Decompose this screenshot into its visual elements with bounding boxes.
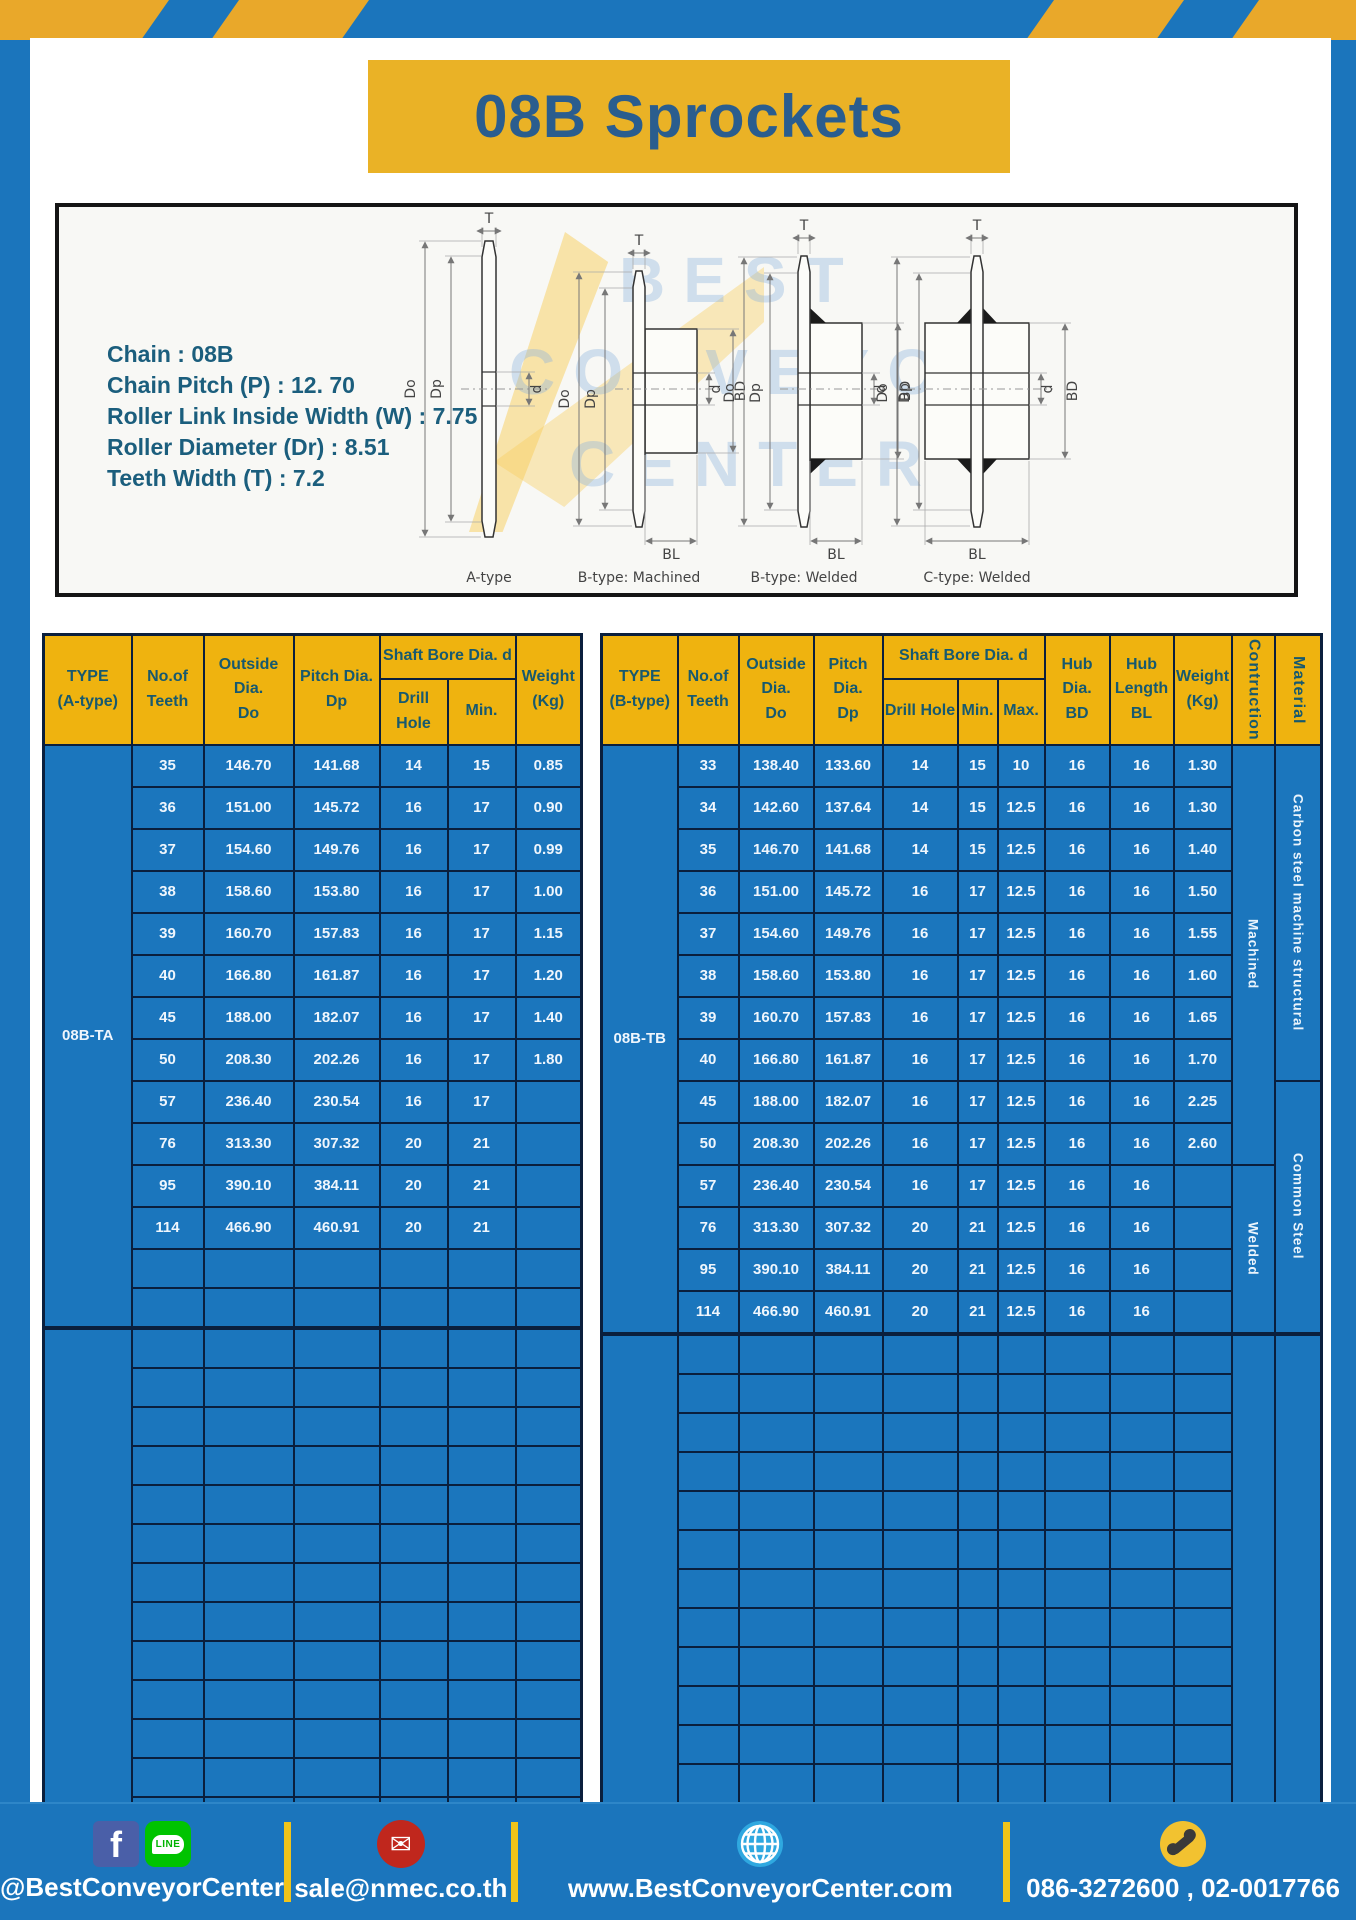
data-cell xyxy=(883,1686,958,1725)
data-cell xyxy=(1110,1686,1174,1725)
data-cell: 16 xyxy=(883,913,958,955)
data-cell: 95 xyxy=(132,1165,204,1207)
table-row: 45188.00182.07161712.516162.25Common Ste… xyxy=(602,1081,1322,1123)
data-cell: 38 xyxy=(132,871,204,913)
data-cell: 202.26 xyxy=(814,1123,883,1165)
data-cell: 16 xyxy=(883,997,958,1039)
data-cell: 158.60 xyxy=(739,955,814,997)
data-cell xyxy=(132,1563,204,1602)
data-cell xyxy=(516,1288,582,1328)
data-cell xyxy=(380,1407,448,1446)
data-cell xyxy=(998,1491,1045,1530)
data-cell xyxy=(516,1758,582,1797)
data-cell: 17 xyxy=(958,871,998,913)
sprocket-diagrams: T Do Dp d A-type T xyxy=(389,211,1294,589)
data-cell: 21 xyxy=(958,1291,998,1334)
data-cell xyxy=(204,1368,294,1407)
data-cell xyxy=(380,1719,448,1758)
data-cell: 1.60 xyxy=(1174,955,1232,997)
data-cell: 182.07 xyxy=(814,1081,883,1123)
dim-label-d: d xyxy=(529,385,545,394)
data-cell xyxy=(204,1563,294,1602)
col-header-min: Min. xyxy=(958,679,998,745)
b-type-table: TYPE (B-type) No.of Teeth Outside Dia. D… xyxy=(600,633,1323,1805)
data-cell: 12.5 xyxy=(998,871,1045,913)
data-cell: 37 xyxy=(132,829,204,871)
data-cell xyxy=(1110,1569,1174,1608)
data-cell: 16 xyxy=(1045,1207,1110,1249)
data-cell: 50 xyxy=(132,1039,204,1081)
table-row: 37154.60149.76161712.516161.55 xyxy=(602,913,1322,955)
data-cell xyxy=(204,1446,294,1485)
diagram-caption: A-type xyxy=(466,570,512,586)
data-cell xyxy=(380,1758,448,1797)
data-cell xyxy=(814,1530,883,1569)
data-cell: 17 xyxy=(448,1081,516,1123)
data-cell xyxy=(132,1249,204,1288)
dim-label-bl: BL xyxy=(662,547,680,563)
website-url: www.BestConveyorCenter.com xyxy=(568,1873,953,1904)
data-cell xyxy=(380,1446,448,1485)
data-cell xyxy=(883,1647,958,1686)
data-cell xyxy=(998,1569,1045,1608)
data-cell: 12.5 xyxy=(998,787,1045,829)
b-type-table-body: 08B-TB33138.40133.6014151016161.30Machin… xyxy=(602,745,1322,1804)
data-cell xyxy=(380,1680,448,1719)
data-cell xyxy=(958,1452,998,1491)
dim-label-dp: Dp xyxy=(748,383,764,403)
data-cell xyxy=(814,1725,883,1764)
data-cell: 20 xyxy=(380,1207,448,1249)
diagram-b-machined: T Do Dp d BD BL B-type: Ma xyxy=(557,233,749,586)
data-cell: 17 xyxy=(448,1039,516,1081)
table-row xyxy=(602,1530,1322,1569)
data-cell xyxy=(448,1368,516,1407)
col-header-pitch-dia: Pitch Dia. Dp xyxy=(294,635,380,745)
data-cell xyxy=(739,1334,814,1374)
data-cell: 1.20 xyxy=(516,955,582,997)
table-row: 08B-TA35146.70141.6814150.85 xyxy=(44,745,582,787)
col-header-outside-dia: Outside Dia. Do xyxy=(739,635,814,745)
data-cell: 16 xyxy=(1110,955,1174,997)
data-cell xyxy=(958,1647,998,1686)
data-cell: 17 xyxy=(448,997,516,1039)
data-cell xyxy=(998,1530,1045,1569)
data-cell xyxy=(1174,1764,1232,1804)
data-cell xyxy=(380,1368,448,1407)
table-row: 38158.60153.80161712.516161.60 xyxy=(602,955,1322,997)
dim-label-do: Do xyxy=(403,379,419,398)
data-cell: 45 xyxy=(132,997,204,1039)
data-cell: 16 xyxy=(1110,1249,1174,1291)
data-cell xyxy=(294,1368,380,1407)
table-row: 08B-TB33138.40133.6014151016161.30Machin… xyxy=(602,745,1322,787)
data-cell xyxy=(1045,1413,1110,1452)
data-cell xyxy=(448,1328,516,1368)
data-cell: 16 xyxy=(1110,1123,1174,1165)
diagram-caption: B-type: Welded xyxy=(750,570,857,586)
data-cell: 307.32 xyxy=(294,1123,380,1165)
type-cell xyxy=(602,1334,678,1804)
data-cell xyxy=(516,1602,582,1641)
data-cell: 133.60 xyxy=(814,745,883,787)
data-cell: 17 xyxy=(448,955,516,997)
data-cell xyxy=(678,1686,739,1725)
data-cell: 16 xyxy=(1045,1249,1110,1291)
email-address: sale@nmec.co.th xyxy=(294,1873,507,1904)
dim-label-bl: BL xyxy=(968,547,986,563)
data-cell xyxy=(883,1569,958,1608)
data-cell xyxy=(516,1081,582,1123)
footer-phone-section: 086-3272600 , 02-0017766 xyxy=(1010,1804,1356,1920)
construction-cell: Machined xyxy=(1232,745,1275,1165)
diagram-c-welded: T Do Dp d BD BL xyxy=(875,218,1081,586)
data-cell xyxy=(1045,1725,1110,1764)
table-row: 34142.60137.64141512.516161.30 xyxy=(602,787,1322,829)
data-cell xyxy=(1110,1374,1174,1413)
data-cell: 236.40 xyxy=(204,1081,294,1123)
data-cell xyxy=(516,1407,582,1446)
data-cell xyxy=(448,1758,516,1797)
data-cell: 21 xyxy=(448,1207,516,1249)
data-cell: 12.5 xyxy=(998,1039,1045,1081)
data-cell: 20 xyxy=(883,1249,958,1291)
data-cell xyxy=(204,1524,294,1563)
data-cell: 145.72 xyxy=(814,871,883,913)
data-cell: 466.90 xyxy=(739,1291,814,1334)
data-cell xyxy=(814,1491,883,1530)
data-cell: 40 xyxy=(132,955,204,997)
data-cell xyxy=(380,1328,448,1368)
table-row xyxy=(602,1334,1322,1374)
data-cell: 16 xyxy=(380,955,448,997)
data-cell: 12.5 xyxy=(998,1207,1045,1249)
data-cell: 12.5 xyxy=(998,1123,1045,1165)
data-cell: 12.5 xyxy=(998,1081,1045,1123)
data-cell: 36 xyxy=(678,871,739,913)
data-cell: 161.87 xyxy=(294,955,380,997)
data-cell: 12.5 xyxy=(998,1249,1045,1291)
data-cell xyxy=(1110,1452,1174,1491)
data-cell: 141.68 xyxy=(814,829,883,871)
data-cell: 114 xyxy=(678,1291,739,1334)
data-cell xyxy=(678,1764,739,1804)
data-cell: 157.83 xyxy=(294,913,380,955)
data-cell xyxy=(998,1725,1045,1764)
data-cell xyxy=(448,1641,516,1680)
data-cell: 17 xyxy=(958,1165,998,1207)
data-cell xyxy=(516,1563,582,1602)
data-cell: 188.00 xyxy=(204,997,294,1039)
col-header-teeth: No.of Teeth xyxy=(678,635,739,745)
data-cell xyxy=(1174,1452,1232,1491)
data-cell: 14 xyxy=(380,745,448,787)
data-cell xyxy=(1045,1686,1110,1725)
data-cell xyxy=(448,1680,516,1719)
data-cell: 21 xyxy=(448,1165,516,1207)
data-cell xyxy=(739,1725,814,1764)
title-banner: 08B Sprockets xyxy=(368,60,1010,173)
data-cell xyxy=(516,1328,582,1368)
data-cell xyxy=(958,1569,998,1608)
data-cell: 57 xyxy=(678,1165,739,1207)
data-cell: 1.40 xyxy=(516,997,582,1039)
col-header-min: Min. xyxy=(448,679,516,745)
data-cell: 313.30 xyxy=(204,1123,294,1165)
data-cell: 20 xyxy=(380,1165,448,1207)
data-cell: 17 xyxy=(448,871,516,913)
data-cell: 161.87 xyxy=(814,1039,883,1081)
data-cell xyxy=(448,1485,516,1524)
data-cell: 38 xyxy=(678,955,739,997)
data-cell: 208.30 xyxy=(204,1039,294,1081)
data-cell xyxy=(294,1719,380,1758)
data-cell: 16 xyxy=(1045,745,1110,787)
data-cell xyxy=(294,1288,380,1328)
table-row: 76313.30307.32202112.51616 xyxy=(602,1207,1322,1249)
dim-label-dp: Dp xyxy=(897,383,913,403)
data-cell xyxy=(380,1249,448,1288)
data-cell: 17 xyxy=(448,787,516,829)
data-cell: 236.40 xyxy=(739,1165,814,1207)
footer: f LINE @BestConveyorCenter ✉ sale@nmec.c… xyxy=(0,1802,1356,1920)
data-cell xyxy=(294,1407,380,1446)
table-row xyxy=(602,1686,1322,1725)
data-cell xyxy=(958,1334,998,1374)
data-cell: 460.91 xyxy=(294,1207,380,1249)
data-cell xyxy=(1110,1764,1174,1804)
data-cell xyxy=(380,1288,448,1328)
footer-email-section: ✉ sale@nmec.co.th xyxy=(291,1804,511,1920)
data-cell xyxy=(132,1368,204,1407)
data-cell xyxy=(204,1407,294,1446)
data-cell xyxy=(204,1641,294,1680)
data-cell xyxy=(814,1686,883,1725)
data-cell xyxy=(1045,1491,1110,1530)
data-cell: 1.15 xyxy=(516,913,582,955)
line-label: LINE xyxy=(152,1835,185,1854)
data-cell xyxy=(998,1334,1045,1374)
type-cell: 08B-TA xyxy=(44,745,132,1328)
dim-label-t: T xyxy=(972,218,982,234)
data-cell xyxy=(739,1647,814,1686)
data-cell: 146.70 xyxy=(204,745,294,787)
table-row: 39160.70157.83161712.516161.65 xyxy=(602,997,1322,1039)
footer-social-section: f LINE @BestConveyorCenter xyxy=(0,1804,284,1920)
table-row xyxy=(602,1569,1322,1608)
data-cell xyxy=(1174,1725,1232,1764)
data-cell: 1.40 xyxy=(1174,829,1232,871)
table-row xyxy=(602,1608,1322,1647)
data-cell xyxy=(448,1602,516,1641)
data-cell xyxy=(998,1686,1045,1725)
data-cell: 202.26 xyxy=(294,1039,380,1081)
data-cell xyxy=(814,1413,883,1452)
data-cell: 141.68 xyxy=(294,745,380,787)
data-cell xyxy=(814,1334,883,1374)
data-cell xyxy=(132,1407,204,1446)
data-cell xyxy=(883,1725,958,1764)
data-cell: 384.11 xyxy=(294,1165,380,1207)
data-cell xyxy=(1045,1452,1110,1491)
data-cell: 16 xyxy=(380,829,448,871)
construction-cell: Welded xyxy=(1232,1165,1275,1334)
data-cell: 149.76 xyxy=(294,829,380,871)
col-header-hub-dia: Hub Dia. BD xyxy=(1045,635,1110,745)
data-cell: 1.00 xyxy=(516,871,582,913)
diagram-box: BEST CONVEYOR CENTER Chain : 08B Chain P… xyxy=(55,203,1298,597)
data-cell xyxy=(516,1641,582,1680)
data-cell: 151.00 xyxy=(204,787,294,829)
data-cell xyxy=(132,1485,204,1524)
data-cell: 76 xyxy=(678,1207,739,1249)
col-header-hub-length: Hub Length BL xyxy=(1110,635,1174,745)
data-cell xyxy=(132,1446,204,1485)
data-cell: 16 xyxy=(1045,997,1110,1039)
data-cell: 137.64 xyxy=(814,787,883,829)
table-row xyxy=(602,1725,1322,1764)
data-cell: 0.85 xyxy=(516,745,582,787)
table-row xyxy=(602,1452,1322,1491)
data-cell xyxy=(958,1530,998,1569)
data-cell xyxy=(1045,1569,1110,1608)
data-cell: 21 xyxy=(958,1249,998,1291)
col-header-shaft-bore: Shaft Bore Dia. d xyxy=(380,635,516,679)
data-cell: 1.30 xyxy=(1174,745,1232,787)
data-cell xyxy=(958,1374,998,1413)
data-cell: 34 xyxy=(678,787,739,829)
data-cell: 16 xyxy=(1110,745,1174,787)
data-cell xyxy=(1110,1725,1174,1764)
data-cell: 230.54 xyxy=(294,1081,380,1123)
data-cell: 21 xyxy=(958,1207,998,1249)
type-cell xyxy=(44,1328,132,1837)
data-cell: 15 xyxy=(958,787,998,829)
data-cell: 14 xyxy=(883,787,958,829)
data-cell xyxy=(998,1764,1045,1804)
data-cell: 1.50 xyxy=(1174,871,1232,913)
data-cell xyxy=(380,1641,448,1680)
col-header-weight: Weight (Kg) xyxy=(516,635,582,745)
data-cell: 149.76 xyxy=(814,913,883,955)
data-cell: 39 xyxy=(678,997,739,1039)
data-cell xyxy=(883,1608,958,1647)
data-cell xyxy=(739,1686,814,1725)
data-cell: 16 xyxy=(1110,1039,1174,1081)
footer-divider xyxy=(284,1822,291,1902)
data-cell xyxy=(516,1123,582,1165)
data-cell: 12.5 xyxy=(998,1165,1045,1207)
data-cell xyxy=(294,1641,380,1680)
data-cell xyxy=(204,1602,294,1641)
line-icon: LINE xyxy=(145,1821,191,1867)
data-cell xyxy=(516,1524,582,1563)
data-cell xyxy=(739,1569,814,1608)
data-cell xyxy=(739,1608,814,1647)
data-cell xyxy=(204,1485,294,1524)
data-cell: 12.5 xyxy=(998,997,1045,1039)
data-cell xyxy=(883,1334,958,1374)
data-cell: 307.32 xyxy=(814,1207,883,1249)
data-cell: 12.5 xyxy=(998,955,1045,997)
data-cell: 10 xyxy=(998,745,1045,787)
data-cell xyxy=(1174,1374,1232,1413)
data-cell xyxy=(739,1374,814,1413)
data-cell: 16 xyxy=(1110,1081,1174,1123)
dim-label-do: Do xyxy=(875,383,891,402)
data-cell xyxy=(132,1524,204,1563)
col-header-shaft-bore: Shaft Bore Dia. d xyxy=(883,635,1045,679)
facebook-icon: f xyxy=(93,1821,139,1867)
globe-icon xyxy=(736,1820,784,1868)
data-cell: 36 xyxy=(132,787,204,829)
data-cell: 466.90 xyxy=(204,1207,294,1249)
data-cell: 188.00 xyxy=(739,1081,814,1123)
data-cell xyxy=(1045,1374,1110,1413)
data-cell xyxy=(1045,1530,1110,1569)
col-header-max: Max. xyxy=(998,679,1045,745)
data-cell: 12.5 xyxy=(998,913,1045,955)
table-row: 57236.40230.54161712.51616Welded xyxy=(602,1165,1322,1207)
data-cell xyxy=(448,1407,516,1446)
data-cell: 16 xyxy=(1110,1207,1174,1249)
data-cell xyxy=(814,1647,883,1686)
data-cell xyxy=(739,1530,814,1569)
type-cell: 08B-TB xyxy=(602,745,678,1334)
data-cell xyxy=(448,1524,516,1563)
dim-label-do: Do xyxy=(722,383,738,402)
data-cell: 151.00 xyxy=(739,871,814,913)
data-cell: 157.83 xyxy=(814,997,883,1039)
data-cell xyxy=(883,1374,958,1413)
hazard-stripe xyxy=(1026,0,1184,40)
a-type-table: TYPE (A-type) No.of Teeth Outside Dia. D… xyxy=(42,633,583,1838)
data-cell: 160.70 xyxy=(739,997,814,1039)
data-cell xyxy=(1174,1686,1232,1725)
data-cell xyxy=(814,1374,883,1413)
data-cell: 1.65 xyxy=(1174,997,1232,1039)
data-cell: 76 xyxy=(132,1123,204,1165)
data-cell: 16 xyxy=(1045,829,1110,871)
table-row xyxy=(602,1647,1322,1686)
data-cell xyxy=(448,1249,516,1288)
data-cell xyxy=(132,1288,204,1328)
data-cell xyxy=(998,1413,1045,1452)
data-cell xyxy=(1045,1764,1110,1804)
data-cell: 39 xyxy=(132,913,204,955)
table-row xyxy=(602,1764,1322,1804)
data-cell: 20 xyxy=(883,1291,958,1334)
data-cell xyxy=(678,1452,739,1491)
catalog-page: 08B Sprockets BEST CONVEYOR CENTER Chain… xyxy=(0,0,1356,1920)
data-cell: 146.70 xyxy=(739,829,814,871)
data-cell: 17 xyxy=(958,955,998,997)
col-header-type: TYPE (B-type) xyxy=(602,635,678,745)
data-cell xyxy=(380,1524,448,1563)
data-cell xyxy=(294,1485,380,1524)
dim-label-dp: Dp xyxy=(583,389,599,409)
data-cell xyxy=(380,1563,448,1602)
hazard-stripe xyxy=(11,0,169,40)
diagram-a-type: T Do Dp d A-type xyxy=(403,211,551,586)
data-cell xyxy=(814,1764,883,1804)
data-cell: 16 xyxy=(1110,1165,1174,1207)
data-cell: 16 xyxy=(1110,997,1174,1039)
data-cell xyxy=(883,1413,958,1452)
data-cell xyxy=(739,1452,814,1491)
data-cell xyxy=(1174,1491,1232,1530)
col-header-weight: Weight (Kg) xyxy=(1174,635,1232,745)
